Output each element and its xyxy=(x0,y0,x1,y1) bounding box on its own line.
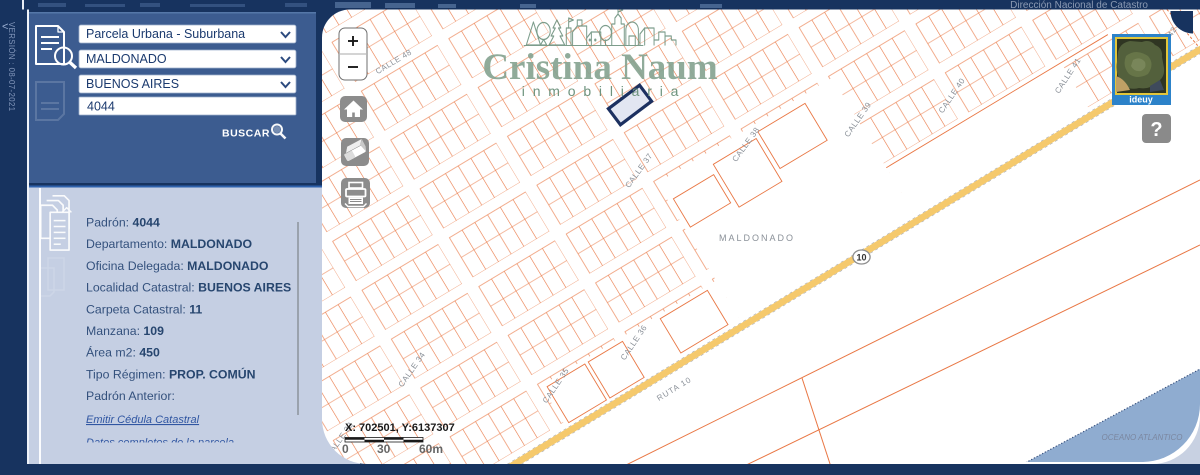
svg-text:10: 10 xyxy=(856,253,866,263)
svg-text:Localidad Catastral: BUENOS AI: Localidad Catastral: BUENOS AIRES xyxy=(86,281,291,295)
svg-text:Departamento: MALDONADO: Departamento: MALDONADO xyxy=(86,237,252,251)
svg-text:Parcela Urbana - Suburbana: Parcela Urbana - Suburbana xyxy=(86,27,245,41)
svg-text:VERSIÓN : 08-07-2021: VERSIÓN : 08-07-2021 xyxy=(7,22,16,111)
svg-text:Área m2: 450: Área m2: 450 xyxy=(86,345,160,360)
svg-text:MALDONADO: MALDONADO xyxy=(719,233,795,243)
svg-text:30: 30 xyxy=(377,442,391,456)
svg-text:inmobiliaria: inmobiliaria xyxy=(522,83,686,99)
svg-text:Oficina Delegada: MALDONADO: Oficina Delegada: MALDONADO xyxy=(86,259,269,273)
svg-text:Emitir Cédula Catastral: Emitir Cédula Catastral xyxy=(86,414,200,426)
svg-text:Padrón: 4044: Padrón: 4044 xyxy=(86,216,160,230)
svg-text:X: 702501, Y:6137307: X: 702501, Y:6137307 xyxy=(345,422,455,434)
svg-text:BUENOS AIRES: BUENOS AIRES xyxy=(86,77,179,91)
svg-text:?: ? xyxy=(1150,119,1162,141)
svg-text:MALDONADO: MALDONADO xyxy=(86,52,167,66)
svg-text:Manzana: 109: Manzana: 109 xyxy=(86,324,164,338)
svg-text:60m: 60m xyxy=(419,442,443,456)
svg-text:Padrón Anterior:: Padrón Anterior: xyxy=(86,389,175,403)
svg-text:Dirección Nacional de Catastro: Dirección Nacional de Catastro xyxy=(1010,0,1148,11)
svg-text:0: 0 xyxy=(342,442,349,456)
svg-text:Carpeta Catastral: 11: Carpeta Catastral: 11 xyxy=(86,302,202,316)
svg-text:OCEANO ATLANTICO: OCEANO ATLANTICO xyxy=(1102,433,1183,442)
svg-text:Tipo Régimen: PROP. COMÚN: Tipo Régimen: PROP. COMÚN xyxy=(86,366,256,381)
svg-text:4044: 4044 xyxy=(87,100,115,114)
svg-text:ideuy: ideuy xyxy=(1129,95,1153,105)
svg-text:Cristina Naum: Cristina Naum xyxy=(482,47,718,88)
svg-text:BUSCAR: BUSCAR xyxy=(222,128,270,140)
